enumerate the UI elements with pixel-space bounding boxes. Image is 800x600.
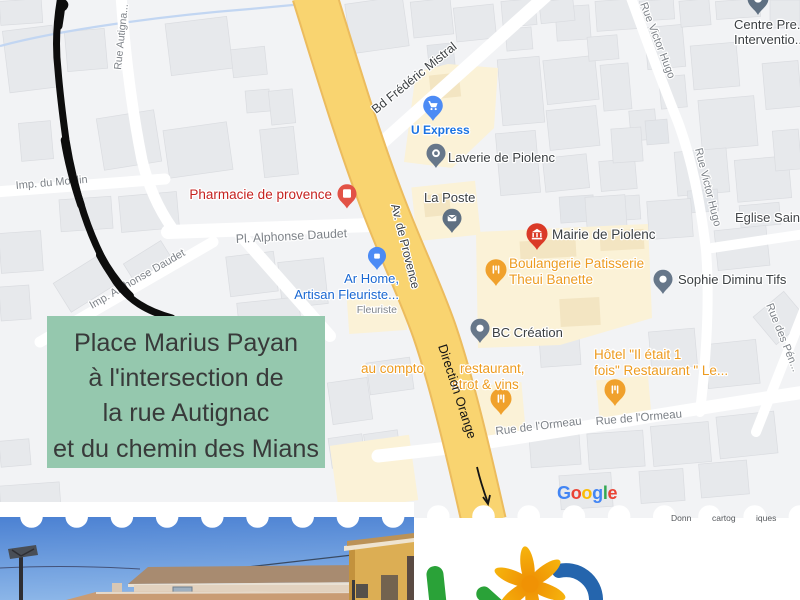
svg-text:restaurant,: restaurant,	[460, 361, 525, 376]
svg-text:Eglise Sain...: Eglise Sain...	[735, 210, 800, 225]
svg-text:à l'intersection de: à l'intersection de	[88, 364, 283, 392]
svg-text:Donn: Donn	[671, 513, 692, 523]
svg-text:Interventio...: Interventio...	[734, 32, 800, 47]
svg-text:La Poste: La Poste	[424, 190, 475, 205]
svg-text:Mairie de Piolenc: Mairie de Piolenc	[552, 227, 656, 242]
svg-text:au compto: au compto	[361, 361, 424, 376]
svg-text:U Express: U Express	[411, 123, 470, 137]
svg-text:Pharmacie de provence: Pharmacie de provence	[189, 187, 332, 202]
svg-text:la rue Autignac: la rue Autignac	[103, 399, 270, 427]
svg-text:Boulangerie Patisserie: Boulangerie Patisserie	[509, 256, 644, 271]
svg-text:Hôtel "Il était 1: Hôtel "Il était 1	[594, 347, 681, 362]
svg-text:Centre Pre...: Centre Pre...	[734, 17, 800, 32]
svg-text:Ar Home,: Ar Home,	[344, 271, 399, 286]
svg-text:Place Marius Payan: Place Marius Payan	[74, 329, 298, 357]
svg-text:Laverie de Piolenc: Laverie de Piolenc	[448, 150, 555, 165]
svg-text:Google: Google	[557, 483, 618, 503]
svg-text:Fleuriste: Fleuriste	[357, 304, 397, 316]
svg-text:Artisan Fleuriste...: Artisan Fleuriste...	[294, 287, 399, 302]
svg-text:iques: iques	[756, 513, 776, 523]
svg-text:BC Création: BC Création	[492, 325, 563, 340]
svg-text:Sophie Diminu Tifs: Sophie Diminu Tifs	[678, 272, 787, 287]
svg-text:cartog: cartog	[712, 513, 736, 523]
svg-text:fois" Restaurant " Le...: fois" Restaurant " Le...	[594, 363, 728, 378]
svg-text:Theui Banette: Theui Banette	[509, 272, 593, 287]
svg-text:et du chemin des Mians: et du chemin des Mians	[53, 435, 319, 463]
